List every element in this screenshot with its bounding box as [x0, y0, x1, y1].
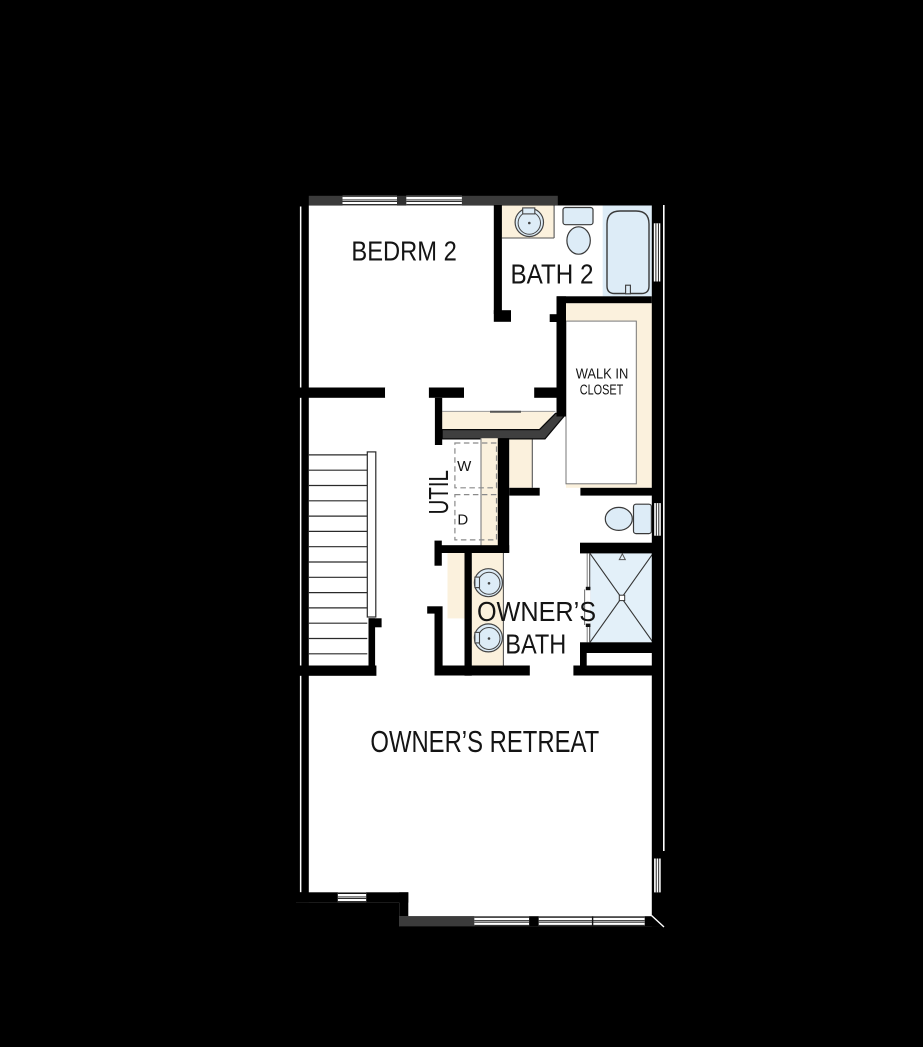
- svg-text:BATH 2: BATH 2: [511, 258, 594, 289]
- svg-text:OWNER’S RETREAT: OWNER’S RETREAT: [370, 725, 599, 759]
- svg-text:UTIL: UTIL: [423, 470, 454, 515]
- svg-text:OWNER’S: OWNER’S: [477, 596, 596, 627]
- svg-text:BATH: BATH: [505, 628, 566, 659]
- svg-text:D: D: [457, 512, 468, 529]
- svg-text:WALK IN: WALK IN: [576, 367, 629, 383]
- svg-text:BEDRM 2: BEDRM 2: [351, 235, 456, 266]
- svg-text:W: W: [457, 458, 472, 475]
- svg-text:CLOSET: CLOSET: [580, 383, 624, 399]
